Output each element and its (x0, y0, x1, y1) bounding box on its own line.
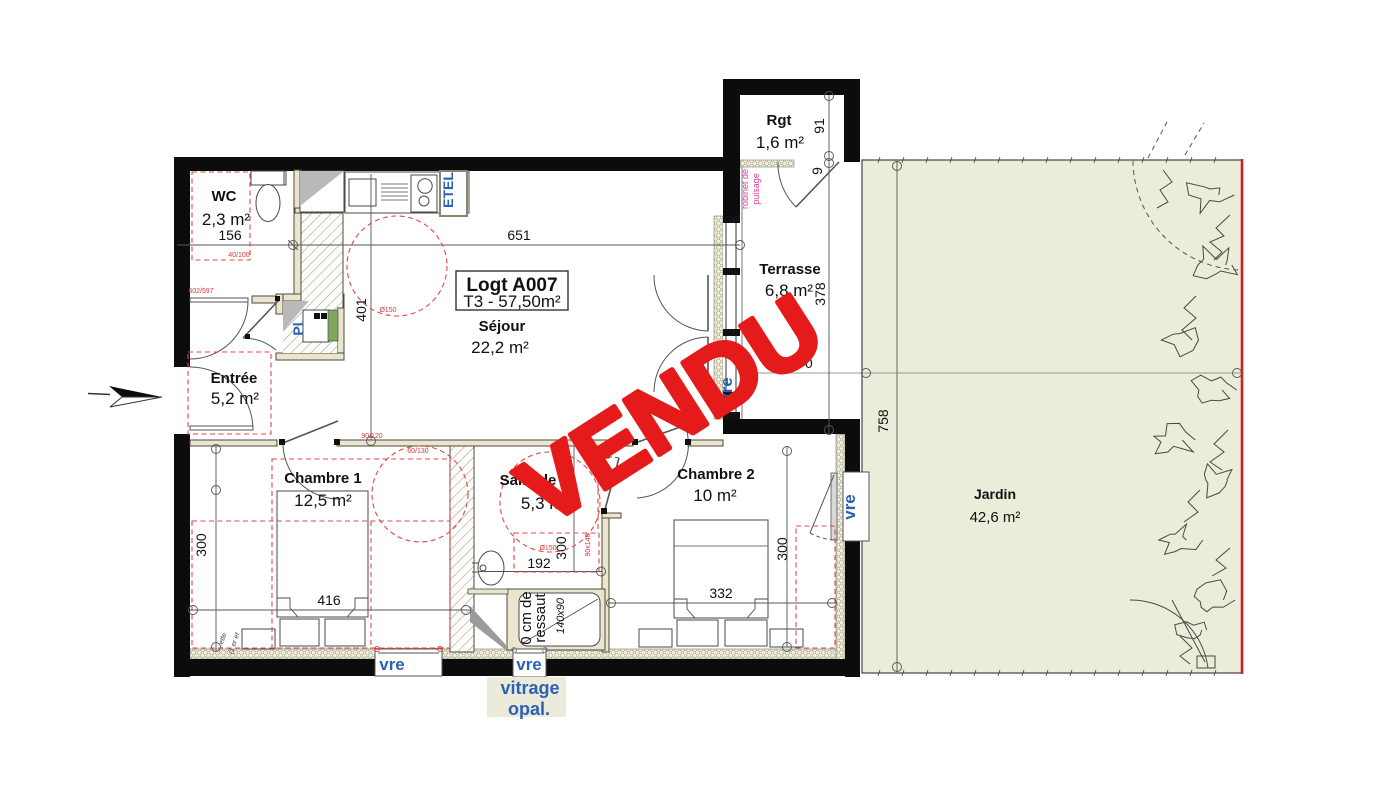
svg-text:9: 9 (809, 167, 825, 175)
svg-text:60/130: 60/130 (407, 448, 429, 455)
svg-text:Séjour: Séjour (479, 318, 526, 335)
svg-text:vre: vre (516, 655, 542, 674)
svg-text:91: 91 (811, 118, 827, 134)
svg-text:WC: WC (212, 188, 237, 205)
svg-text:140x90: 140x90 (555, 597, 567, 634)
svg-text:401: 401 (353, 298, 369, 322)
svg-text:2,3 m²: 2,3 m² (202, 210, 251, 229)
svg-text:651: 651 (507, 227, 531, 243)
svg-text:42,6 m²: 42,6 m² (970, 509, 1021, 526)
svg-text:378: 378 (812, 282, 828, 306)
svg-text:Chambre 2: Chambre 2 (677, 466, 755, 483)
svg-text:22,2 m²: 22,2 m² (471, 338, 529, 357)
svg-text:vitrage: vitrage (500, 678, 559, 698)
svg-text:Chambre 1: Chambre 1 (284, 470, 362, 487)
svg-text:Terrasse: Terrasse (759, 261, 820, 278)
svg-text:300: 300 (774, 537, 790, 561)
svg-text:ressaut: ressaut (532, 593, 549, 643)
svg-text:5,2 m²: 5,2 m² (211, 389, 260, 408)
svg-text:puisage: puisage (751, 173, 761, 205)
svg-text:332: 332 (709, 585, 733, 601)
svg-text:Rgt: Rgt (767, 112, 792, 129)
svg-text:Ø150: Ø150 (379, 307, 396, 314)
svg-text:758: 758 (875, 409, 891, 433)
svg-text:156: 156 (218, 227, 242, 243)
svg-text:90x140: 90x140 (585, 533, 592, 556)
svg-text:vre: vre (840, 494, 859, 520)
svg-text:602/597: 602/597 (188, 288, 213, 295)
svg-text:12,5 m²: 12,5 m² (294, 491, 352, 510)
svg-text:192: 192 (527, 555, 551, 571)
svg-text:ETEL: ETEL (440, 172, 456, 208)
svg-text:300: 300 (193, 533, 209, 557)
svg-text:90/120: 90/120 (361, 433, 383, 440)
svg-text:vre: vre (379, 655, 405, 674)
svg-text:Jardin: Jardin (974, 486, 1016, 502)
svg-text:10 m²: 10 m² (693, 486, 737, 505)
svg-text:robinet de: robinet de (740, 169, 750, 209)
svg-text:opal.: opal. (508, 699, 550, 719)
svg-text:T3 - 57,50m²: T3 - 57,50m² (463, 292, 561, 311)
svg-text:416: 416 (317, 592, 341, 608)
svg-text:40/100: 40/100 (228, 252, 250, 259)
svg-text:1,6 m²: 1,6 m² (756, 133, 805, 152)
svg-text:Entrée: Entrée (211, 370, 258, 387)
svg-text:Ø150: Ø150 (539, 545, 556, 552)
svg-text:Pl: Pl (290, 322, 306, 335)
